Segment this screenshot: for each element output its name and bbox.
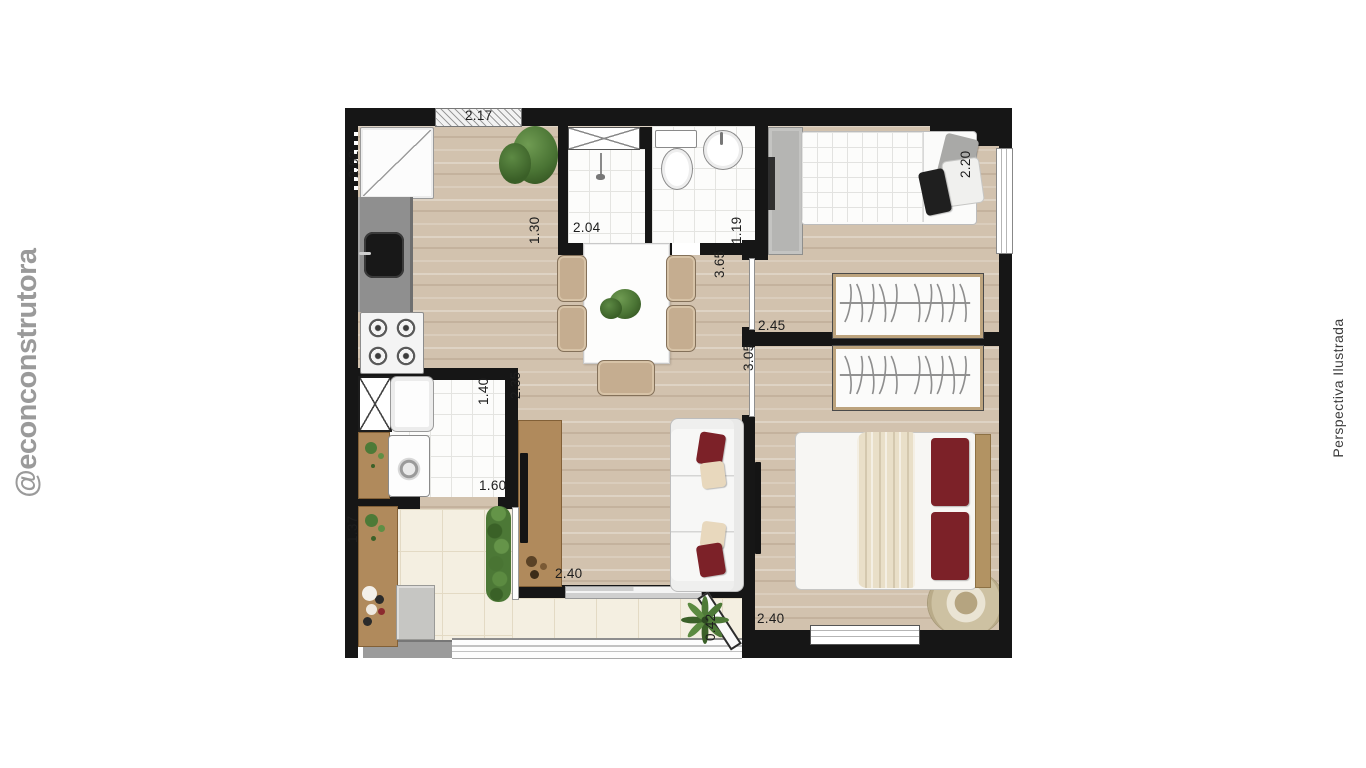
bedroom2-window bbox=[810, 625, 920, 645]
wall-left bbox=[345, 108, 358, 658]
double-bed-pillow-red-1 bbox=[931, 438, 969, 506]
wall-bath-right bbox=[755, 121, 768, 255]
dim-balcony-corner: 0.42 bbox=[703, 614, 719, 641]
laundry-tank bbox=[390, 376, 434, 432]
dim-bedroom1-depth: 2.45 bbox=[758, 318, 785, 334]
balcony-bench bbox=[358, 506, 398, 647]
dim-bedroom1-width: 2.20 bbox=[958, 151, 974, 178]
dim-laundry-width: 1.40 bbox=[476, 378, 492, 405]
dim-balcony-width: 2.40 bbox=[555, 566, 582, 582]
dim-laundry-depth: 1.60 bbox=[479, 478, 506, 494]
dim-living-width: 2.35 bbox=[508, 372, 524, 399]
double-bed-headboard bbox=[975, 434, 991, 588]
toilet-bowl bbox=[661, 148, 693, 190]
watermark-handle-suffix: construtora bbox=[11, 248, 43, 404]
bedroom1-window bbox=[996, 148, 1013, 254]
dim-shower-width: 2.04 bbox=[573, 220, 600, 236]
watermark-handle-prefix: @econ bbox=[11, 404, 43, 497]
washing-machine bbox=[388, 435, 430, 497]
dining-chair-left-1 bbox=[557, 255, 587, 302]
bathroom-door-opening bbox=[672, 243, 700, 255]
bathroom-tap bbox=[720, 132, 723, 145]
wardrobe-bedroom2 bbox=[833, 346, 983, 410]
dim-kitchen-front: 2.17 bbox=[465, 108, 492, 124]
dining-chair-left-2 bbox=[557, 305, 587, 352]
wall-hall-stub-top bbox=[742, 240, 768, 260]
dim-shower-depth: 1.30 bbox=[527, 217, 543, 244]
kitchen-faucet bbox=[359, 252, 371, 255]
shower-head bbox=[596, 174, 605, 180]
living-balcony-glass bbox=[512, 507, 519, 600]
dim-bedroom2-depth: 3.05 bbox=[741, 344, 757, 371]
hangers-icon bbox=[836, 349, 974, 401]
stove-cooktop bbox=[360, 312, 424, 374]
refrigerator bbox=[360, 127, 434, 199]
plant-table-centerpiece bbox=[609, 289, 641, 319]
double-bed-pillow-red-2 bbox=[931, 512, 969, 580]
dining-chair-right-1 bbox=[666, 255, 696, 302]
wall-bath-stub bbox=[638, 127, 652, 149]
tv-living bbox=[520, 453, 528, 543]
laundry-shelf-plants bbox=[365, 442, 377, 454]
balcony-hedge bbox=[486, 506, 511, 602]
dining-chair-bottom bbox=[597, 360, 655, 396]
dim-kitchen-side: 2.62 bbox=[346, 151, 362, 178]
toilet-tank bbox=[655, 130, 697, 148]
sofa-pillow-cream-1 bbox=[700, 461, 727, 490]
balcony-bench-flowers bbox=[362, 586, 377, 601]
service-duct bbox=[358, 376, 392, 432]
shower-rod bbox=[600, 153, 602, 175]
hangers-icon bbox=[836, 277, 974, 329]
wardrobe-bedroom1 bbox=[833, 274, 983, 338]
bathroom-sink bbox=[703, 130, 743, 170]
bathroom-cabinet bbox=[568, 127, 640, 150]
tv-rack-decor bbox=[526, 556, 537, 567]
dining-chair-right-2 bbox=[666, 305, 696, 352]
double-bed-blanket bbox=[857, 432, 915, 588]
dim-balcony-depth: 1.37 bbox=[345, 516, 361, 543]
wall-bath-divider bbox=[645, 144, 652, 243]
dim-bedroom2-width: 2.40 bbox=[757, 611, 784, 627]
caption-perspective-note: Perspectiva Ilustrada bbox=[1330, 283, 1350, 493]
wall-bath-left bbox=[558, 121, 568, 255]
sofa-pillow-red-2 bbox=[696, 542, 727, 578]
watermark-social-handle: @econconstrutora bbox=[11, 203, 45, 543]
tv-bedroom2 bbox=[755, 462, 761, 554]
kitchen-sink bbox=[364, 232, 404, 278]
dim-bathroom-width: 1.19 bbox=[729, 217, 745, 244]
bedroom1-door-leaf bbox=[749, 258, 755, 330]
bedroom1-wardrobe-mirror bbox=[768, 157, 775, 210]
balcony-stool bbox=[396, 585, 435, 640]
single-bed-quilt bbox=[802, 132, 924, 222]
floor-plan: 2.62 2.17 1.30 2.04 1.19 3.65 2.20 2.45 … bbox=[345, 108, 1012, 658]
balcony-bench-plants bbox=[365, 514, 378, 527]
plant-kitchen bbox=[512, 126, 558, 184]
dim-living-hall: 3.65 bbox=[712, 251, 728, 278]
